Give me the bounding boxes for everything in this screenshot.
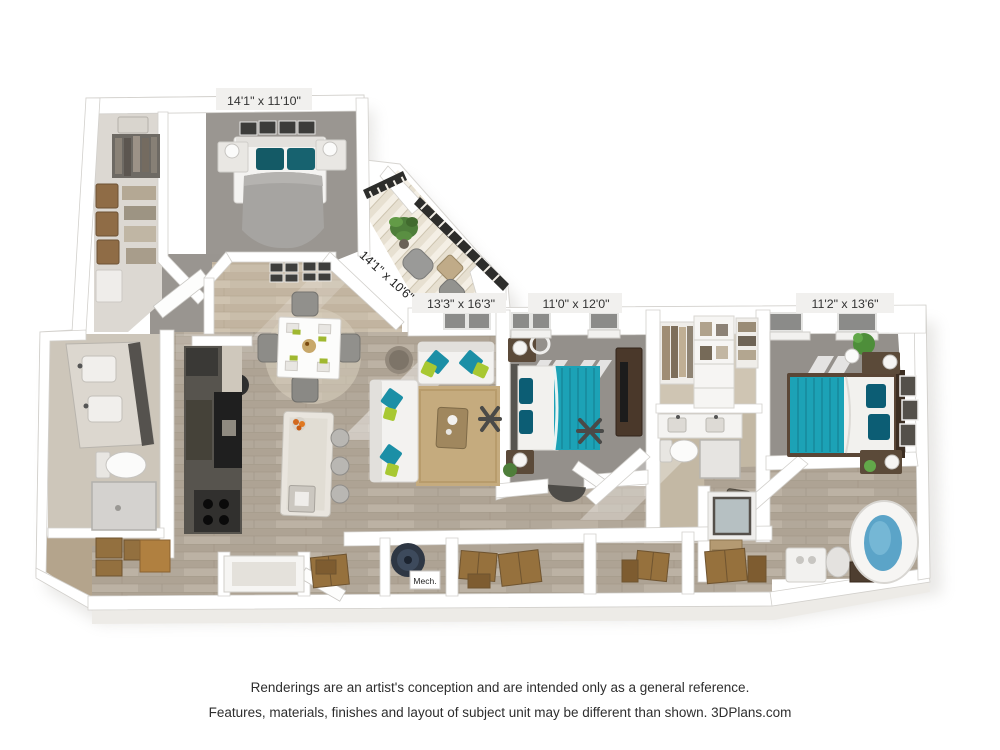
svg-text:Renderings are an artist's con: Renderings are an artist's conception an… — [251, 680, 750, 695]
svg-text:13'3" x 16'3": 13'3" x 16'3" — [427, 297, 495, 311]
svg-text:Features, materials, finishes: Features, materials, finishes and layout… — [209, 705, 792, 720]
svg-text:14'1" x 11'10": 14'1" x 11'10" — [227, 94, 301, 108]
svg-text:11'2" x 13'6": 11'2" x 13'6" — [811, 297, 878, 311]
svg-text:Mech.: Mech. — [413, 576, 436, 586]
svg-text:11'0" x 12'0": 11'0" x 12'0" — [542, 297, 609, 311]
